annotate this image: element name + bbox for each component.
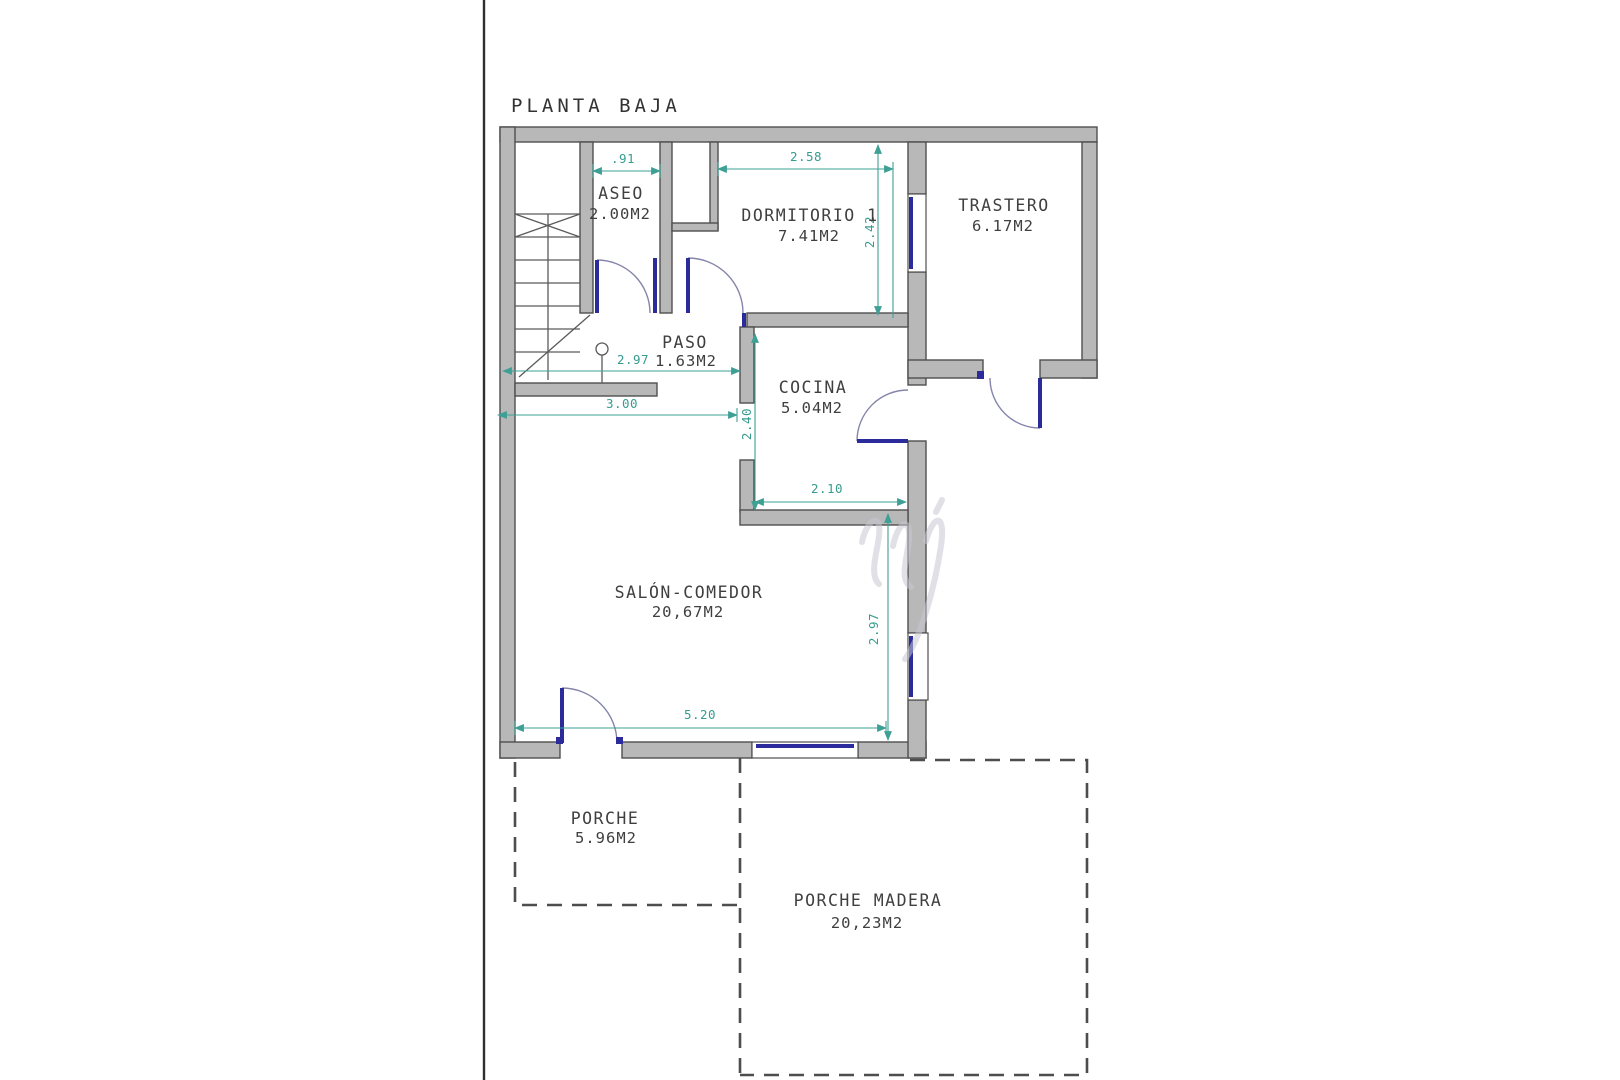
dim-cocina-width: 2.10: [811, 481, 843, 496]
room-label-cocina: COCINA: [779, 378, 848, 397]
room-area-porche: 5.96M2: [575, 829, 637, 847]
windows: [752, 194, 928, 758]
room-area-trastero: 6.17M2: [972, 217, 1034, 235]
door-arc-trastero: [990, 378, 1040, 428]
dim-cocina-depth: 2.40: [739, 408, 754, 440]
door-arc-aseo: [597, 260, 650, 313]
dim-paso-width: 2.97: [617, 352, 649, 367]
dimension-lines: [498, 145, 906, 740]
room-area-paso: 1.63M2: [655, 352, 717, 370]
dim-hall-width: 3.00: [606, 396, 638, 411]
porche-madera-outline: [740, 760, 1087, 1075]
room-area-porche-madera: 20,23M2: [831, 914, 903, 932]
porch-outlines: [515, 758, 1087, 1075]
dim-salon-depth: 2.97: [866, 613, 881, 645]
room-area-salon: 20,67M2: [652, 603, 724, 621]
room-label-aseo: ASEO: [598, 184, 644, 203]
room-label-dormitorio: DORMITORIO 1: [741, 206, 878, 225]
stairs: [515, 214, 608, 383]
dim-dormitorio-width: 2.58: [790, 149, 822, 164]
dim-aseo-width: .91: [611, 151, 635, 166]
room-label-trastero: TRASTERO: [958, 196, 1049, 215]
room-area-cocina: 5.04M2: [781, 399, 843, 417]
room-area-dormitorio: 7.41M2: [778, 227, 840, 245]
room-label-salon: SALÓN-COMEDOR: [615, 583, 764, 602]
room-label-paso: PASO: [662, 333, 708, 352]
floorplan-page: PLANTA BAJA: [0, 0, 1620, 1080]
plan-title: PLANTA BAJA: [511, 95, 681, 117]
room-label-porche: PORCHE: [571, 809, 640, 828]
dim-salon-width: 5.20: [684, 707, 716, 722]
door-arc-dormitorio: [688, 258, 743, 313]
door-arc-salon: [562, 688, 617, 743]
floorplan-drawing: PLANTA BAJA: [0, 0, 1620, 1080]
door-arc-cocina: [857, 390, 908, 441]
room-area-aseo: 2.00M2: [589, 205, 651, 223]
doors: [556, 258, 1040, 744]
room-label-porche-madera: PORCHE MADERA: [794, 891, 943, 910]
